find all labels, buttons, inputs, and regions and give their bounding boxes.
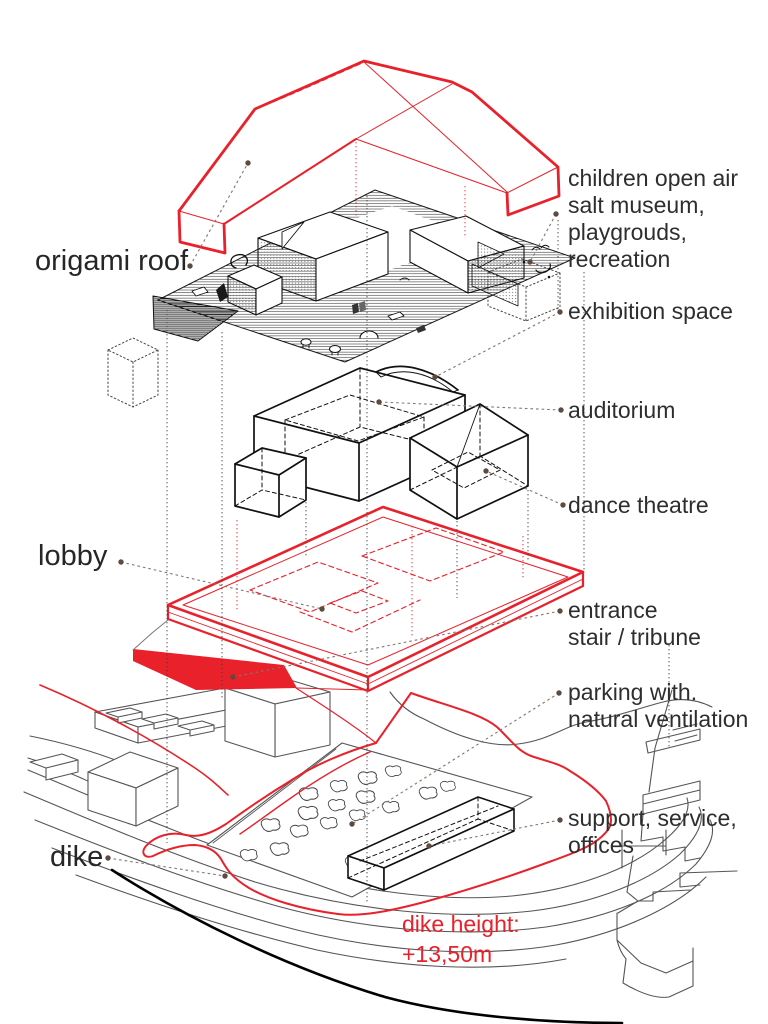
label-support-line2: offices: [568, 832, 634, 858]
label-dike-height-line1: dike height:: [402, 911, 520, 937]
ghost-volume-left: [108, 338, 158, 407]
small-cube: [235, 448, 306, 517]
diagram-canvas: origami roof lobby dike children open ai…: [0, 0, 768, 1024]
quay-structures: [617, 690, 737, 997]
label-children-line2: salt museum,: [568, 192, 705, 218]
label-dance-theatre: dance theatre: [568, 492, 709, 518]
label-parking-line2: natural ventilation: [568, 706, 748, 732]
label-lobby: lobby: [38, 540, 108, 572]
label-children-line4: recreation: [568, 246, 670, 272]
leader-dike: [108, 858, 225, 876]
sheep-glyph: [330, 346, 341, 353]
label-auditorium: auditorium: [568, 397, 675, 423]
label-children-line1: children open air: [568, 165, 738, 191]
label-exhibition: exhibition space: [568, 298, 733, 324]
label-support-line1: support, service,: [568, 805, 737, 831]
exploded-axonometric-diagram: origami roof lobby dike children open ai…: [0, 0, 768, 1024]
label-origami-roof: origami roof: [35, 245, 189, 277]
label-dike-height-line2: +13,50m: [402, 941, 492, 967]
label-dike: dike: [50, 841, 103, 873]
label-entrance-line2: stair / tribune: [568, 624, 701, 650]
label-parking-line1: parking with.: [568, 679, 697, 705]
label-children-line3: playgrouds,: [568, 219, 687, 245]
label-entrance-line1: entrance: [568, 597, 658, 623]
leader-exhibition: [435, 312, 560, 377]
